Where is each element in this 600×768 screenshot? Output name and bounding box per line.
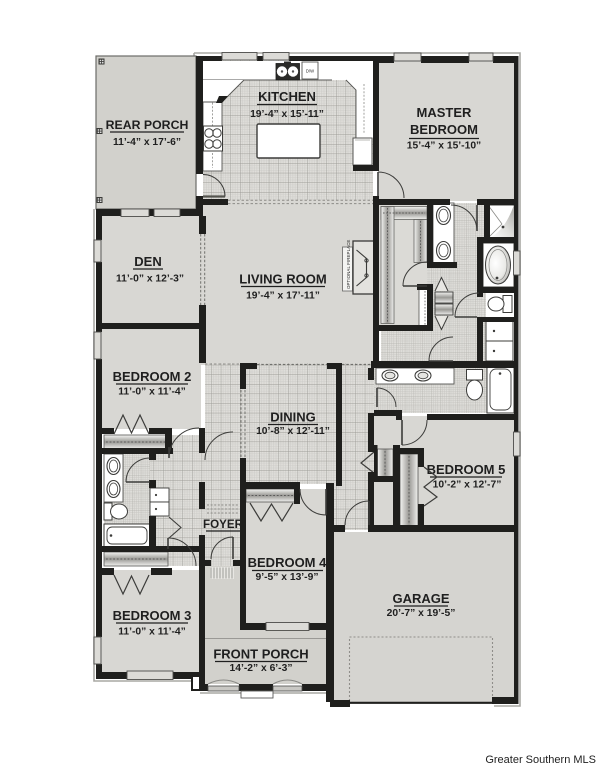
svg-text:19’-4” x 15’-11”: 19’-4” x 15’-11” bbox=[250, 109, 324, 120]
svg-text:D/W: D/W bbox=[306, 69, 314, 74]
svg-text:FOYER: FOYER bbox=[203, 518, 244, 531]
svg-text:LIVING ROOM: LIVING ROOM bbox=[239, 272, 326, 287]
svg-text:11’-0” x 11’-4”: 11’-0” x 11’-4” bbox=[118, 387, 186, 398]
svg-text:DINING: DINING bbox=[270, 410, 316, 425]
svg-text:BEDROOM 3: BEDROOM 3 bbox=[113, 608, 192, 623]
svg-text:DEN: DEN bbox=[134, 254, 161, 269]
svg-text:20’-7” x 19’-5”: 20’-7” x 19’-5” bbox=[387, 608, 456, 619]
svg-text:BEDROOM 4: BEDROOM 4 bbox=[248, 555, 328, 570]
svg-text:11’-0” x 12’-3”: 11’-0” x 12’-3” bbox=[116, 274, 184, 285]
svg-text:OPTIONAL FIREPLACE: OPTIONAL FIREPLACE bbox=[346, 240, 351, 289]
svg-text:14’-2” x 6’-3”: 14’-2” x 6’-3” bbox=[230, 663, 293, 674]
svg-text:BEDROOM 2: BEDROOM 2 bbox=[113, 369, 192, 384]
svg-text:FRONT PORCH: FRONT PORCH bbox=[213, 647, 308, 662]
svg-text:9’-5” x 13’-9”: 9’-5” x 13’-9” bbox=[256, 572, 319, 583]
svg-text:10’-2” x 12’-7”: 10’-2” x 12’-7” bbox=[433, 480, 502, 491]
svg-text:Greater Southern MLS: Greater Southern MLS bbox=[485, 754, 596, 766]
svg-text:BEDROOM: BEDROOM bbox=[410, 122, 478, 137]
svg-text:REAR PORCH: REAR PORCH bbox=[106, 118, 189, 132]
svg-text:11’-0” x 11’-4”: 11’-0” x 11’-4” bbox=[118, 627, 186, 638]
svg-text:BEDROOM 5: BEDROOM 5 bbox=[427, 462, 506, 477]
svg-text:15’-4” x 15’-10”: 15’-4” x 15’-10” bbox=[407, 141, 481, 152]
svg-text:11’-4” x 17’-6”: 11’-4” x 17’-6” bbox=[113, 137, 181, 148]
svg-text:MASTER: MASTER bbox=[417, 105, 473, 120]
svg-text:GARAGE: GARAGE bbox=[392, 591, 449, 606]
svg-text:10’-8” x 12’-11”: 10’-8” x 12’-11” bbox=[256, 426, 330, 437]
svg-text:KITCHEN: KITCHEN bbox=[258, 89, 316, 104]
svg-text:19’-4” x 17’-11”: 19’-4” x 17’-11” bbox=[246, 291, 320, 302]
